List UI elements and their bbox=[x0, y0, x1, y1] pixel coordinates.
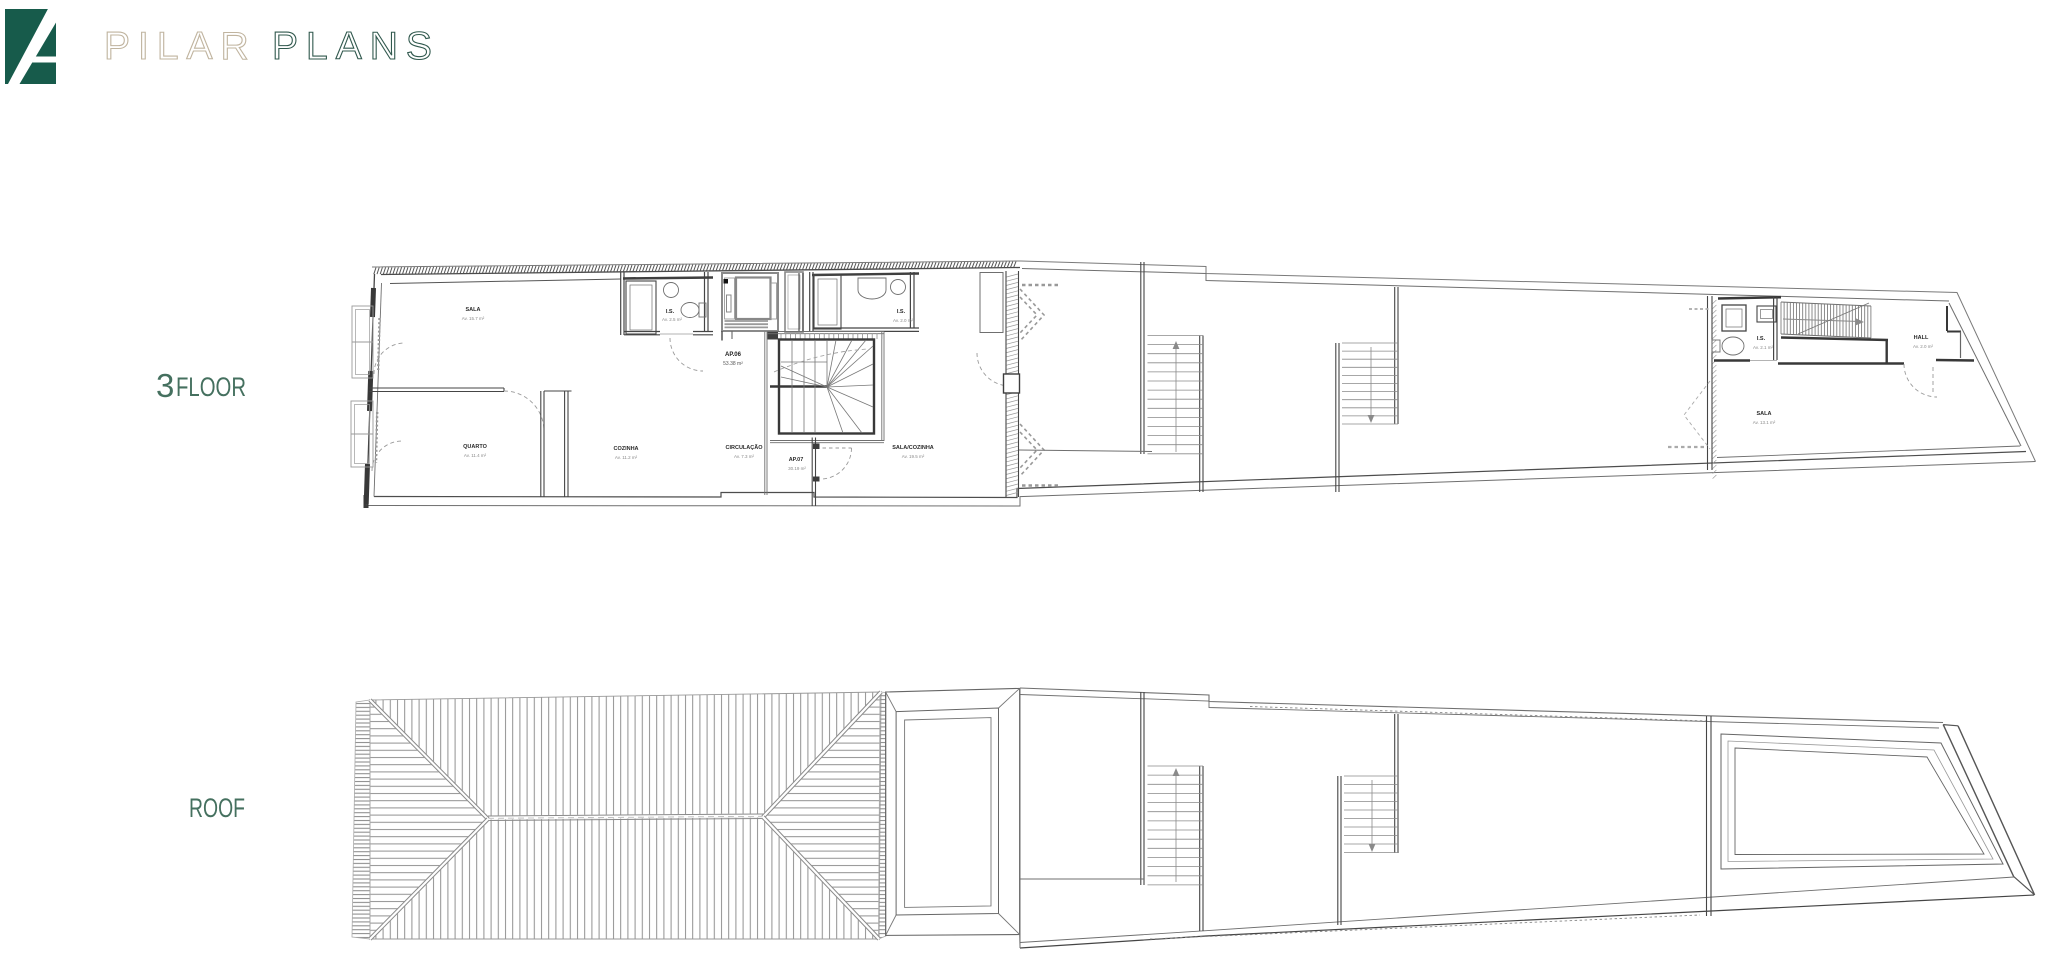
svg-text:Av. 7.3 m²: Av. 7.3 m² bbox=[734, 454, 755, 459]
svg-text:SALA/COZINHA: SALA/COZINHA bbox=[892, 445, 934, 451]
svg-text:PLANS: PLANS bbox=[272, 25, 440, 68]
svg-text:CIRCULAÇÃO: CIRCULAÇÃO bbox=[726, 444, 764, 451]
svg-text:I.S.: I.S. bbox=[666, 309, 675, 315]
svg-text:SALA: SALA bbox=[466, 307, 481, 313]
svg-text:Av. 13.1 m²: Av. 13.1 m² bbox=[1753, 420, 1776, 425]
svg-text:Av. 2.0 m²: Av. 2.0 m² bbox=[893, 318, 914, 323]
svg-text:Av. 19.5 m²: Av. 19.5 m² bbox=[902, 454, 925, 459]
svg-text:53.38 m²: 53.38 m² bbox=[723, 361, 743, 367]
svg-text:COZINHA: COZINHA bbox=[613, 446, 638, 452]
svg-text:HALL: HALL bbox=[1914, 335, 1929, 341]
svg-text:Av. 11.4 m²: Av. 11.4 m² bbox=[464, 453, 487, 458]
svg-text:Av. 2.1 m²: Av. 2.1 m² bbox=[1753, 345, 1774, 350]
svg-text:Av. 11.2 m²: Av. 11.2 m² bbox=[615, 455, 638, 460]
svg-text:3: 3 bbox=[156, 367, 174, 404]
svg-text:AP.07: AP.07 bbox=[789, 457, 804, 463]
svg-text:PILAR: PILAR bbox=[104, 25, 257, 68]
svg-text:Av. 15.7 m²: Av. 15.7 m² bbox=[462, 316, 485, 321]
svg-text:AP.06: AP.06 bbox=[725, 352, 742, 358]
svg-text:FLOOR: FLOOR bbox=[176, 372, 246, 402]
svg-text:I.S.: I.S. bbox=[897, 309, 906, 315]
svg-text:ROOF: ROOF bbox=[189, 793, 245, 823]
svg-text:Av. 2.5 m²: Av. 2.5 m² bbox=[662, 317, 683, 322]
svg-text:QUARTO: QUARTO bbox=[463, 444, 487, 450]
svg-text:Av. 2.0 m²: Av. 2.0 m² bbox=[1913, 344, 1934, 349]
svg-text:SALA: SALA bbox=[1757, 411, 1772, 417]
svg-text:I.S.: I.S. bbox=[1757, 336, 1766, 342]
svg-text:30.19 m²: 30.19 m² bbox=[788, 466, 806, 471]
